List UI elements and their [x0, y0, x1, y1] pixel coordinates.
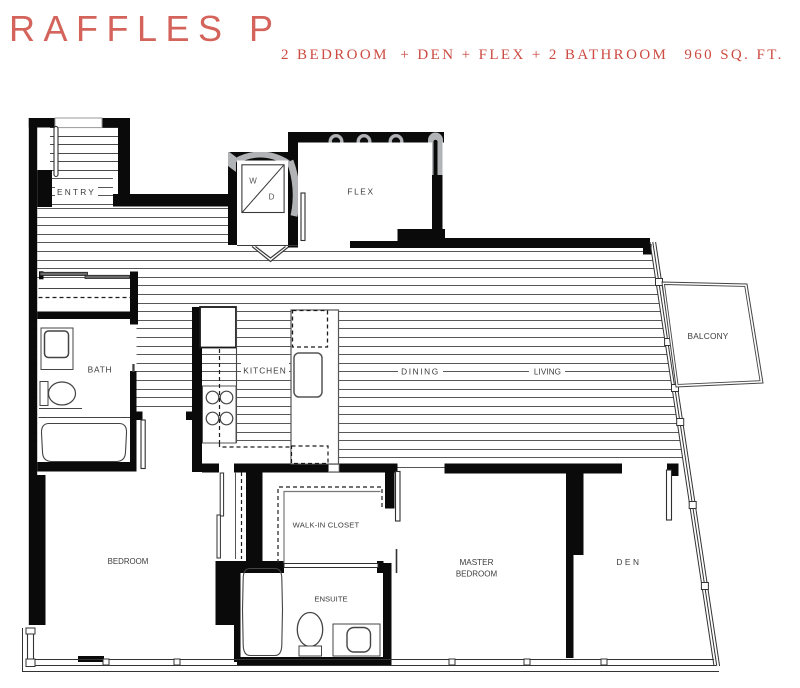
svg-text:W: W: [249, 177, 257, 186]
svg-text:ENSUITE: ENSUITE: [314, 595, 347, 604]
svg-text:LIVING: LIVING: [534, 368, 561, 377]
svg-text:BALCONY: BALCONY: [687, 331, 728, 341]
svg-text:BEDROOM: BEDROOM: [108, 557, 149, 566]
svg-text:ENTRY: ENTRY: [57, 187, 96, 197]
svg-text:DINING: DINING: [401, 367, 440, 377]
svg-text:WALK-IN CLOSET: WALK-IN CLOSET: [293, 521, 360, 530]
svg-text:MASTER: MASTER: [459, 558, 493, 567]
svg-text:KITCHEN: KITCHEN: [243, 366, 286, 376]
svg-text:BEDROOM: BEDROOM: [456, 570, 498, 579]
svg-text:DEN: DEN: [616, 557, 641, 567]
svg-text:FLEX: FLEX: [347, 187, 374, 197]
svg-text:D: D: [269, 193, 275, 202]
svg-text:BATH: BATH: [88, 365, 113, 375]
